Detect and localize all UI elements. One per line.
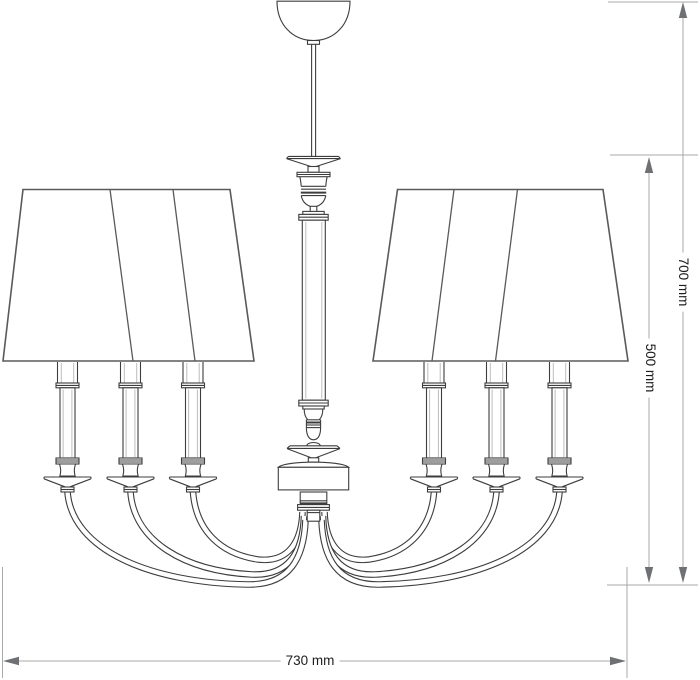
ceiling-canopy [277, 1, 350, 44]
arrow-down-icon [645, 567, 653, 583]
center-column [299, 211, 328, 439]
shade-right [373, 190, 628, 362]
arrow-left-icon [3, 657, 19, 665]
dimension-label-body-height: 500 mm [640, 339, 658, 398]
dimension-label-width: 730 mm [281, 652, 340, 670]
arrow-right-icon [610, 657, 626, 665]
chandelier-drawing [3, 1, 628, 584]
hub-body [278, 443, 348, 522]
technical-drawing-canvas: 700 mm 500 mm 730 mm [0, 0, 700, 680]
upper-drip-pan [287, 156, 341, 172]
shade-left [3, 190, 254, 362]
arrow-up-icon [645, 157, 653, 173]
hanging-rod [312, 44, 316, 156]
arrow-up-icon [679, 2, 687, 18]
finial-urn [297, 172, 330, 212]
chandelier-technical-drawing [0, 0, 700, 680]
dimension-label-total-height: 700 mm [674, 253, 692, 312]
arrow-down-icon [679, 567, 687, 583]
